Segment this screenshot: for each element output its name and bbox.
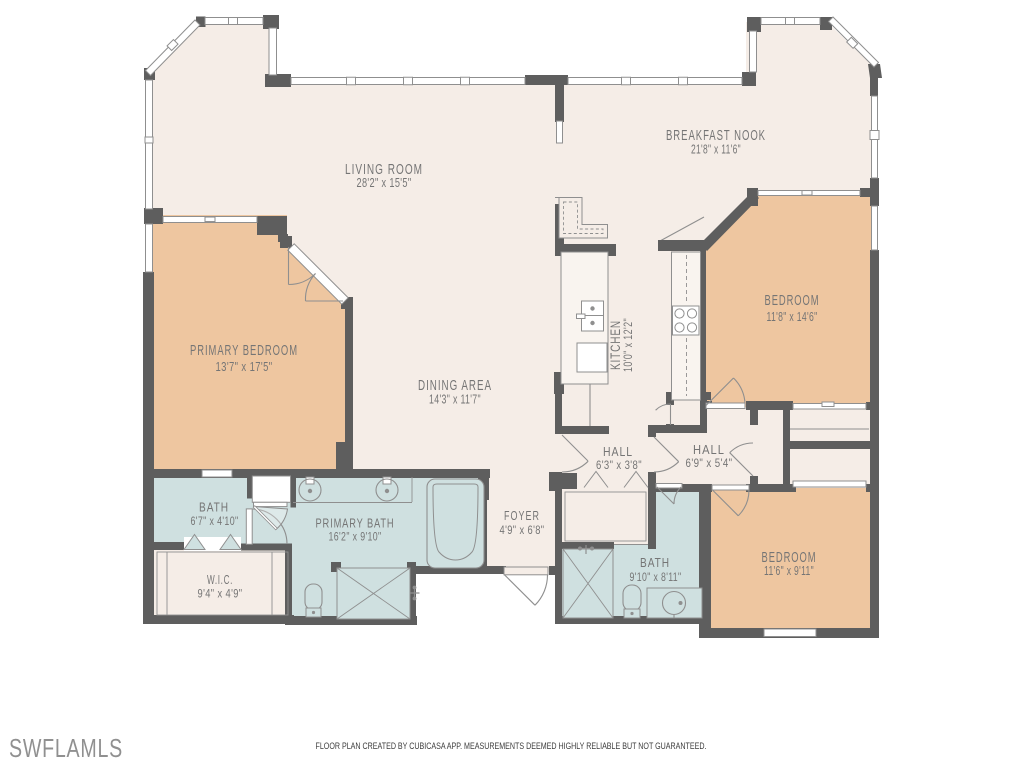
svg-text:14'3" x 11'7": 14'3" x 11'7" [429,392,481,407]
svg-text:FOYER: FOYER [504,508,540,523]
svg-text:W.I.C.: W.I.C. [207,572,233,587]
svg-text:FLOOR PLAN CREATED BY CUBICASA: FLOOR PLAN CREATED BY CUBICASA APP. MEAS… [316,741,707,751]
svg-text:PRIMARY BATH: PRIMARY BATH [316,516,395,531]
svg-text:BATH: BATH [640,555,670,570]
svg-text:SWFLAMLS: SWFLAMLS [9,733,123,763]
svg-text:PRIMARY BEDROOM: PRIMARY BEDROOM [190,342,298,359]
svg-text:6'3" x 3'8": 6'3" x 3'8" [596,458,642,472]
svg-text:13'7" x 17'5": 13'7" x 17'5" [216,359,273,374]
svg-text:10'0" x 12'2": 10'0" x 12'2" [621,318,635,372]
svg-text:11'6" x 9'11": 11'6" x 9'11" [764,563,814,578]
svg-text:9'10" x 8'11": 9'10" x 8'11" [630,570,682,584]
svg-text:4'9" x 6'8": 4'9" x 6'8" [500,523,545,537]
svg-text:21'8" x 11'6": 21'8" x 11'6" [691,142,741,157]
svg-text:HALL: HALL [693,442,725,457]
svg-text:9'4" x 4'9": 9'4" x 4'9" [198,587,243,601]
svg-text:6'7" x 4'10": 6'7" x 4'10" [191,514,239,528]
svg-text:HALL: HALL [603,444,633,459]
svg-text:BEDROOM: BEDROOM [765,292,820,309]
svg-text:11'8" x 14'6": 11'8" x 14'6" [767,309,818,324]
svg-text:BATH: BATH [199,500,229,515]
svg-text:16'2" x 9'10": 16'2" x 9'10" [329,530,382,544]
svg-text:6'9" x 5'4": 6'9" x 5'4" [686,456,733,470]
svg-text:28'2" x 15'5": 28'2" x 15'5" [357,175,412,190]
